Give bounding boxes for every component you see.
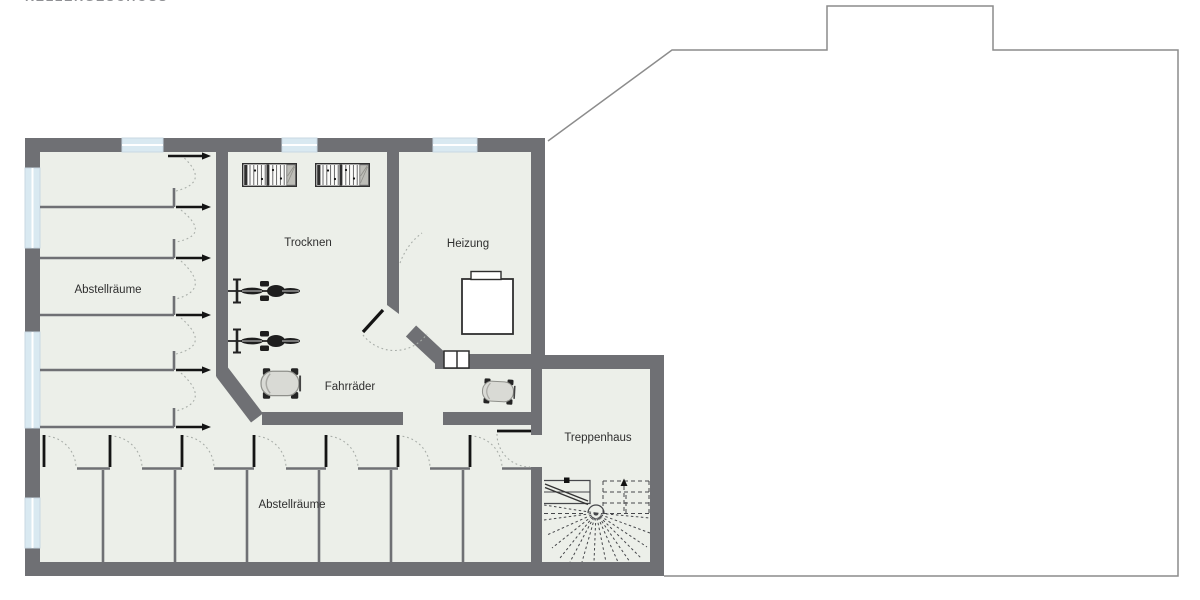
window [25,498,40,548]
wall-segment [262,412,403,425]
room-label-fahrraeder: Fahrräder [270,381,430,393]
room-label-treppenhaus: Treppenhaus [518,432,678,444]
floorplan-drawing [0,0,1200,600]
boiler-icon [462,272,513,335]
wall-segment [387,152,399,305]
wall-segment [25,562,664,576]
stair-start-marker [564,478,570,484]
wall-segment [443,412,531,425]
wall-segment [216,152,228,376]
wall-segment [531,369,542,435]
window [282,138,317,152]
room-label-abstellraeume-left: Abstellräume [28,284,188,296]
window [122,138,163,152]
chimney-shaft-icon [444,351,469,368]
room-label-trocknen: Trocknen [228,237,388,249]
window [433,138,477,152]
window [25,168,40,248]
room-label-heizung: Heizung [388,238,548,250]
floorplan: KELLERGESCHOSS [0,0,1200,600]
room-label-abstellraeume-bottom: Abstellräume [212,499,372,511]
drying-rack-icon [316,164,370,187]
wall-segment [650,369,664,562]
wall-segment [531,467,542,562]
wall-segment [531,355,664,369]
drying-rack-icon [243,164,297,187]
window [25,332,40,428]
stroller-icon [482,378,515,405]
